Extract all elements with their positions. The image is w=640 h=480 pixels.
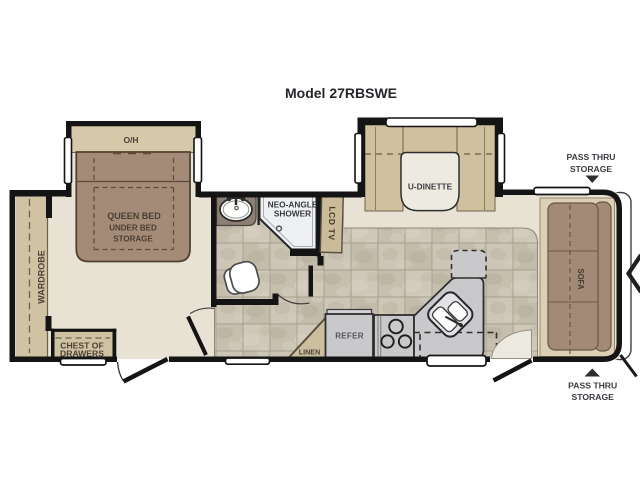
svg-text:SOFA: SOFA [576,268,585,290]
svg-text:LINEN: LINEN [299,348,321,357]
svg-text:STORAGE: STORAGE [570,164,613,174]
svg-text:SHOWER: SHOWER [274,209,311,219]
svg-text:UNDER BED: UNDER BED [109,224,157,233]
svg-text:STORAGE: STORAGE [113,235,153,244]
svg-text:LCD TV: LCD TV [327,206,338,241]
svg-text:WARDROBE: WARDROBE [37,250,47,304]
svg-text:PASS THRU: PASS THRU [566,152,615,162]
svg-text:REFER: REFER [335,332,364,341]
svg-text:PASS THRU: PASS THRU [568,381,617,391]
svg-text:O/H: O/H [123,135,138,145]
svg-text:QUEEN BED: QUEEN BED [107,211,161,221]
svg-text:U-DINETTE: U-DINETTE [408,182,453,192]
svg-text:STORAGE: STORAGE [572,392,615,402]
svg-text:Model 27RBSWE: Model 27RBSWE [285,85,397,101]
